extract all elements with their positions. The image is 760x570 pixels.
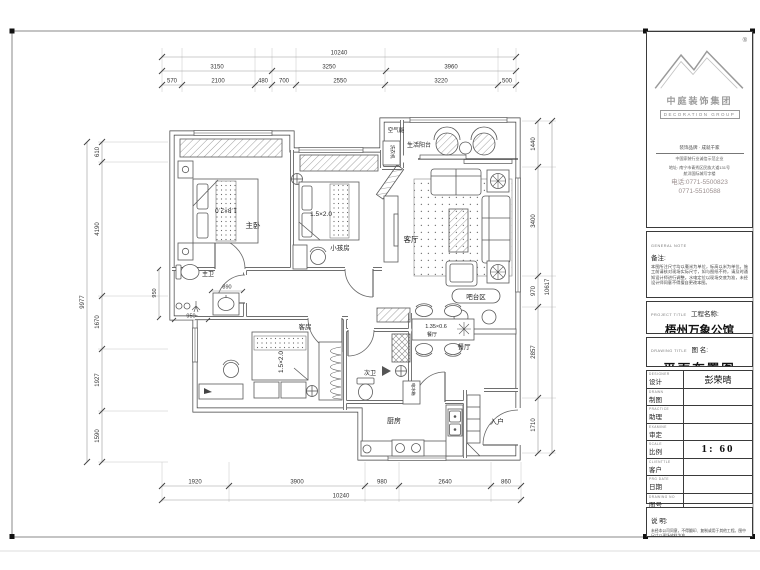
room-label-entry: 入户	[490, 417, 504, 426]
svg-text:3400: 3400	[531, 214, 537, 228]
balcony-table	[460, 142, 472, 154]
toilet-second	[357, 378, 374, 400]
room-label-second-bath: 次卫	[364, 369, 376, 377]
table-flower	[457, 322, 471, 336]
room-label-master: 主卧	[246, 220, 261, 230]
nightstand	[178, 161, 193, 178]
window-kids-top	[299, 146, 363, 154]
guest-desk	[199, 384, 243, 399]
svg-text:2550: 2550	[333, 79, 347, 85]
scale-value: 1: 60	[684, 441, 752, 458]
door-kids	[345, 269, 373, 297]
dim-left-total: 9977	[80, 295, 86, 309]
row-designer: DESIGNER设计 彭荣晴	[647, 371, 752, 389]
shoe-cabinet	[377, 308, 410, 322]
guest-bed-size: 1.5×2.0	[278, 351, 285, 373]
row-client: CLIENTTLE客户	[647, 459, 752, 477]
dining-table-size: 1.35×0.6	[425, 324, 447, 330]
dim-right-total: 10617	[545, 278, 551, 295]
svg-text:1590: 1590	[95, 429, 101, 443]
svg-text:570: 570	[167, 79, 178, 85]
window-guest-left	[191, 328, 199, 362]
sink-master	[213, 293, 239, 315]
statement-section: 说 明: 未经本公司同意，不得翻印、复制或用于其他工程。图中尺寸以现场放样为准。	[646, 507, 753, 537]
sofa-right	[482, 196, 510, 263]
svg-text:480: 480	[258, 79, 269, 85]
flower-decor	[396, 366, 407, 377]
svg-text:970: 970	[531, 285, 537, 296]
guest-wardrobe	[319, 342, 342, 400]
general-note-section: GENERAL NOTE 备注: 本图所注尺寸均以毫米为单位，标高以米为单位。施…	[646, 231, 753, 298]
phone-numbers: 电话:0771-5500823 0771-5510588	[647, 179, 752, 196]
drawing-title-section: DRAWING TITLE 图 名: 平面布置图	[646, 337, 753, 367]
svg-text:2857: 2857	[531, 345, 537, 359]
dim-bath-width: 950	[186, 314, 195, 320]
svg-text:3900: 3900	[290, 480, 304, 486]
dining-chair	[445, 304, 462, 317]
master-wardrobe	[180, 139, 282, 157]
svg-text:2100: 2100	[211, 79, 225, 85]
toilet-master	[176, 265, 199, 280]
svg-text:1670: 1670	[95, 315, 101, 329]
armchair	[446, 261, 477, 286]
drawing-name: 平面布置图	[651, 358, 748, 367]
svg-text:1920: 1920	[188, 480, 202, 486]
stove	[392, 440, 424, 456]
general-note-body: 本图所注尺寸均以毫米为单位，标高以米为单位。施工前请核对现场实际尺寸，如与图纸不…	[651, 264, 748, 286]
address: 地址: 南宁市青秀区民族大道131号 航洋国际城写字楼	[647, 165, 752, 176]
kids-bed-size: 1.5×2.0	[310, 211, 332, 218]
room-label-master-bath: 主卫	[202, 270, 214, 278]
side-table-plant	[487, 170, 509, 192]
room-label-kitchen: 厨房	[387, 416, 401, 425]
slogan-line2: 中国家装行业诚信示范企业	[647, 156, 752, 162]
room-label-living: 客厅	[404, 234, 419, 244]
svg-text:1440: 1440	[531, 137, 537, 151]
fridge-label: 电冰箱	[410, 383, 417, 396]
kitchen-sink	[448, 409, 462, 436]
designer-name: 彭荣晴	[684, 371, 752, 388]
cad-sheet: { "title_block": { "registered_mark": "®…	[0, 0, 760, 570]
svg-text:3220: 3220	[434, 79, 448, 85]
nightstand	[178, 243, 193, 260]
svg-text:1710: 1710	[531, 418, 537, 432]
wicker-chair	[434, 127, 460, 155]
row-drawn: DRAWN制图	[647, 389, 752, 407]
bar-stool	[482, 310, 496, 324]
registered-mark: ®	[743, 38, 747, 44]
company-name: 中庭装饰集团	[647, 94, 752, 107]
svg-text:4190: 4190	[95, 222, 101, 236]
wicker-chair	[471, 127, 497, 155]
door-entry	[483, 410, 518, 445]
window-master-top	[194, 129, 272, 137]
shower-head	[192, 301, 200, 312]
room-label-balcony: 生活阳台	[407, 141, 431, 149]
statement-body: 未经本公司同意，不得翻印、复制或用于其他工程。图中尺寸以现场放样为准。	[651, 529, 748, 537]
door-master	[215, 239, 245, 269]
svg-text:1927: 1927	[95, 373, 101, 387]
project-title-section: PROJECT TITLE 工程名称: 梧州万象公馆	[646, 301, 753, 334]
svg-text:860: 860	[501, 480, 512, 486]
dim-bottom-total: 10240	[333, 494, 350, 500]
svg-text:吧台区: 吧台区	[466, 292, 486, 301]
mountain-logo-icon	[652, 44, 747, 92]
kids-desk	[293, 245, 307, 269]
svg-text:2640: 2640	[438, 480, 452, 486]
dim-top-total: 10240	[331, 51, 348, 57]
svg-text:3250: 3250	[322, 65, 336, 71]
sofa-top	[431, 169, 481, 195]
flower-decor	[307, 386, 318, 397]
project-name: 梧州万象公馆	[651, 322, 748, 334]
tv-cabinet	[384, 196, 398, 262]
row-practice: PRACTICE助理	[647, 406, 752, 424]
row-examine: EXAMINE审定	[647, 424, 752, 442]
dining-inner-label: 餐厅	[427, 331, 437, 338]
entry-cabinet	[467, 395, 480, 456]
room-label-kids: 小孩房	[330, 243, 350, 252]
coffee-table	[449, 209, 468, 252]
bar-label: 吧台区	[452, 289, 500, 303]
kids-chair	[310, 247, 326, 264]
row-date: PRG DATE日期	[647, 476, 752, 494]
sliding-door-balcony	[420, 155, 512, 164]
svg-text:500: 500	[502, 79, 513, 85]
room-label-guest: 客房	[299, 322, 312, 331]
window-living-right	[514, 178, 522, 292]
master-bed-size: 1.8×2.0	[215, 207, 237, 214]
dim-bath-height: 950	[152, 288, 158, 297]
room-label-dining: 餐厅	[458, 342, 472, 351]
svg-text:3150: 3150	[210, 65, 224, 71]
slogan-line1: 装饰品牌 · 成就千家	[656, 145, 744, 154]
kids-wardrobe	[300, 155, 378, 171]
signature-rows: DESIGNER设计 彭荣晴 DRAWN制图 PRACTICE助理 EXAMIN…	[646, 370, 753, 504]
dining-chair	[416, 304, 433, 317]
dim-bath-sink: 890	[222, 285, 231, 291]
dining-chair	[416, 344, 433, 357]
room-label-washer: 洗衣机	[389, 145, 396, 159]
guest-chair	[223, 360, 239, 377]
logo-section: ® 中庭装饰集团 DECORATION GROUP 装饰品牌 · 成就千家 中国…	[646, 31, 753, 228]
svg-text:3960: 3960	[444, 65, 458, 71]
duct-shaft	[392, 334, 410, 362]
title-block: ® 中庭装饰集团 DECORATION GROUP 装饰品牌 · 成就千家 中国…	[646, 31, 753, 537]
row-scale: SCALE比例 1: 60	[647, 441, 752, 459]
svg-text:610: 610	[95, 146, 101, 157]
corridor-cabinet	[376, 165, 403, 199]
svg-text:980: 980	[377, 480, 388, 486]
side-table-plant	[487, 261, 509, 283]
svg-text:700: 700	[279, 79, 290, 85]
general-note-en: GENERAL NOTE	[651, 244, 687, 248]
room-label-air-unit: 空气能	[388, 126, 405, 134]
general-note-cn: 备注:	[651, 252, 748, 262]
window-balcony-top	[410, 116, 507, 124]
shower-arrow	[382, 366, 391, 376]
company-name-en: DECORATION GROUP	[660, 110, 740, 119]
